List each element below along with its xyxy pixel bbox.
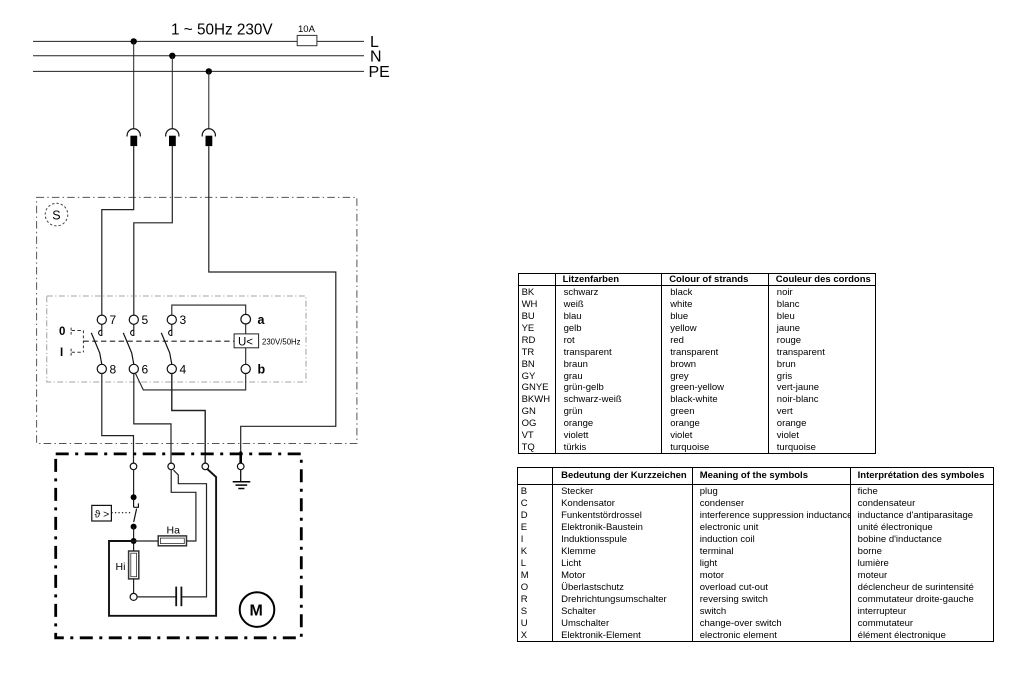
svg-text:0: 0 [59, 326, 65, 338]
svg-text:N: N [370, 49, 382, 66]
svg-text:3: 3 [180, 313, 187, 327]
svg-text:Hi: Hi [116, 561, 126, 573]
svg-text:6: 6 [142, 362, 149, 376]
svg-text:U<: U< [238, 336, 253, 348]
svg-text:1 ~ 50Hz 230V: 1 ~ 50Hz 230V [171, 22, 273, 39]
svg-text:5: 5 [142, 313, 149, 327]
svg-text:a: a [258, 313, 266, 327]
svg-text:b: b [258, 362, 266, 376]
svg-text:10A: 10A [298, 24, 316, 35]
svg-text:S: S [52, 208, 60, 222]
svg-text:7: 7 [110, 313, 117, 327]
svg-text:PE: PE [369, 64, 390, 81]
svg-text:ϑ >: ϑ > [95, 508, 110, 520]
svg-text:Ha: Ha [167, 525, 181, 537]
svg-text:230V/50Hz: 230V/50Hz [262, 338, 301, 347]
svg-text:4: 4 [180, 362, 187, 376]
svg-text:M: M [250, 603, 263, 620]
svg-text:I: I [60, 347, 63, 359]
svg-text:8: 8 [110, 362, 117, 376]
